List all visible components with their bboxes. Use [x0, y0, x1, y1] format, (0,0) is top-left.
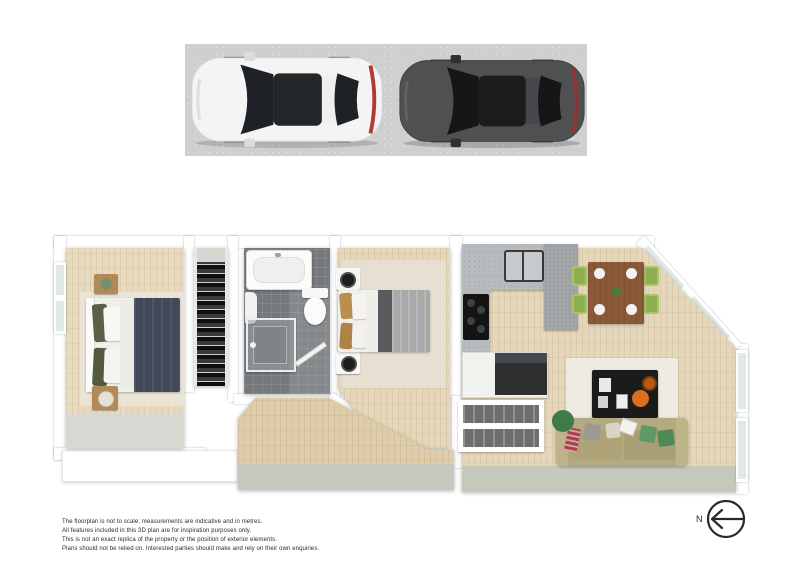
cooktop-burner-4: [477, 325, 485, 333]
living-entry-strip: [462, 466, 736, 492]
dining-table: [588, 262, 644, 324]
sofa-pillow-gray: [583, 423, 601, 441]
shower-head: [250, 342, 256, 348]
bed2-nightstand-top: [336, 268, 360, 290]
coffee-table-book-3: [616, 394, 628, 409]
bedroom-1-entry-strip: [66, 414, 184, 448]
bedroom-1-window: [54, 262, 66, 334]
disclaimer: The floorplan is not to scale; measureme…: [62, 518, 382, 554]
orange-vase: [642, 376, 657, 391]
wall-bedroom2-kitchen: [450, 236, 462, 398]
living-window-1: [736, 350, 748, 412]
living-window-2-glass: [738, 421, 746, 479]
white-car: [190, 50, 384, 150]
disclaimer-line-4: Plans should not be relied on. Intereste…: [62, 545, 382, 554]
sofa: [556, 418, 688, 466]
orange-bowl: [632, 390, 649, 407]
bed2-duvet: [392, 290, 430, 352]
compass-arrow-icon: [706, 499, 746, 539]
bed1-nightstand-bottom: [92, 386, 118, 410]
plate-4: [626, 304, 637, 315]
kitchen-cooktop: [463, 294, 489, 340]
kitchen-peninsula: [544, 244, 578, 330]
dining-chair-3: [644, 266, 659, 286]
porch-slab: [62, 450, 238, 482]
toilet-bowl: [304, 297, 326, 325]
dining-chair-1: [572, 266, 587, 286]
bed1-duvet: [134, 298, 180, 392]
kitchen-sink: [504, 250, 544, 282]
bathtub-faucet: [275, 253, 281, 257]
bathtub-basin: [253, 257, 305, 283]
sofa-pillow-green-1: [639, 425, 658, 444]
bedroom-2-bed: [338, 290, 430, 352]
bedroom-1-window-glass-2: [56, 301, 64, 331]
wardrobe: [194, 248, 228, 386]
dining-chair-4: [644, 294, 659, 314]
shower-tray: [253, 326, 287, 364]
plate-3: [594, 304, 605, 315]
appliance-top: [495, 353, 547, 363]
coffee-table: [592, 370, 658, 418]
compass-north-label: N: [696, 514, 703, 524]
disclaimer-line-1: The floorplan is not to scale; measureme…: [62, 518, 382, 527]
bedroom-1-window-glass-1: [56, 265, 64, 295]
bedroom-1-bed: [86, 298, 180, 392]
hallway-entry-strip: [238, 464, 454, 490]
kitchen-counter-left: [462, 290, 490, 354]
living-window-2: [736, 418, 748, 482]
cooktop-burner-3: [467, 317, 475, 325]
bed1-nightstand-top: [94, 274, 118, 294]
disclaimer-line-3: This is not an exact replica of the prop…: [62, 536, 382, 545]
floorplan-page: The floorplan is not to scale; measureme…: [0, 0, 800, 565]
shower: [246, 318, 296, 372]
kitchen-bench-appliance: [495, 353, 547, 395]
sofa-plant: [552, 410, 574, 432]
coffee-table-book-2: [598, 396, 608, 408]
wall-bedroom1-wardrobe: [184, 236, 194, 392]
cooktop-burner-1: [467, 299, 475, 307]
bathtub: [246, 250, 312, 290]
sofa-pillow-green-2: [657, 429, 675, 447]
stairs-rail: [458, 423, 544, 429]
hallway-floor: [238, 398, 454, 490]
kitchen-bench: [462, 352, 548, 398]
sofa-arm-right: [676, 418, 688, 466]
dining-chair-2: [572, 294, 587, 314]
coffee-table-book-1: [599, 378, 611, 392]
bed1-lamp: [98, 391, 114, 407]
compass: N: [696, 499, 746, 539]
bed2-speaker-bottom: [341, 356, 357, 372]
disclaimer-line-2: All features included in this 3D plan ar…: [62, 527, 382, 536]
dark-car: [398, 53, 586, 150]
wardrobe-shelf: [194, 248, 228, 262]
bed2-speaker-top: [340, 272, 356, 288]
cooktop-burner-2: [477, 306, 485, 314]
plate-1: [594, 268, 605, 279]
stairs: [458, 400, 544, 452]
bed1-plant: [100, 278, 112, 290]
living-window-1-glass: [738, 353, 746, 409]
plate-2: [626, 268, 637, 279]
wall-wardrobe-bathroom: [228, 236, 238, 402]
wardrobe-rail-right: [225, 248, 228, 386]
dining-centerpiece: [612, 287, 621, 296]
wardrobe-rail-left: [194, 248, 197, 386]
bed2-nightstand-bottom: [336, 352, 360, 374]
kitchen-sink-divider: [522, 252, 524, 280]
